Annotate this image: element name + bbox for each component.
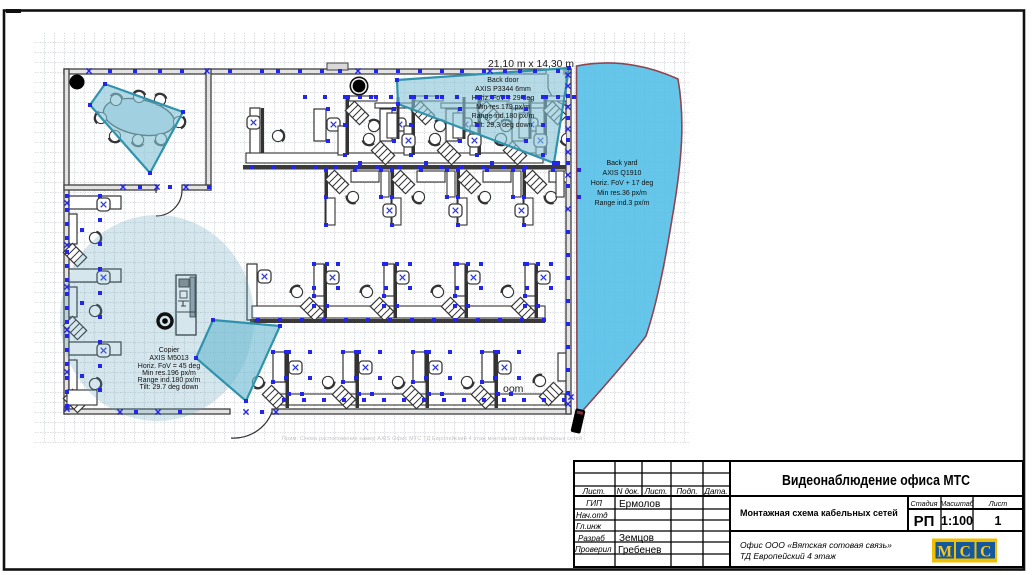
svg-text:AXIS Q1910: AXIS Q1910 bbox=[603, 170, 642, 177]
svg-text:Лист.: Лист. bbox=[582, 487, 606, 496]
svg-text:AXIS P3344 6mm: AXIS P3344 6mm bbox=[475, 86, 531, 93]
svg-text:Лист.: Лист. bbox=[644, 487, 668, 496]
svg-text:Офис ООО «Вятская сотовая связ: Офис ООО «Вятская сотовая связь» bbox=[740, 540, 892, 550]
svg-text:Horiz. FoV = 45 deg: Horiz. FoV = 45 deg bbox=[138, 363, 201, 370]
svg-text:Range ind.3 px/m: Range ind.3 px/m bbox=[595, 200, 650, 207]
svg-text:Подп.: Подп. bbox=[676, 487, 697, 496]
svg-text:Min res.179 px/m: Min res.179 px/m bbox=[476, 104, 530, 111]
svg-text:РП: РП bbox=[914, 513, 935, 530]
svg-text:ТД Европейский 4 этаж: ТД Европейский 4 этаж bbox=[740, 551, 837, 561]
svg-text:Земцов: Земцов bbox=[619, 533, 654, 544]
svg-text:Нач.отд: Нач.отд bbox=[576, 511, 608, 520]
svg-text:Tilt: 29.7 deg down: Tilt: 29.7 deg down bbox=[140, 384, 199, 391]
svg-text:Прим: Схема расположения каме: Прим: Схема расположения камер AXIS Офис… bbox=[282, 435, 582, 442]
svg-text:Стадия: Стадия bbox=[911, 499, 938, 508]
svg-text:Монтажная схема кабельных се: Монтажная схема кабельных сетей bbox=[740, 508, 898, 518]
svg-text:N док.: N док. bbox=[617, 487, 640, 496]
svg-text:oom: oom bbox=[503, 383, 524, 395]
svg-text:Range ind.180 px/m: Range ind.180 px/m bbox=[472, 113, 535, 120]
svg-text:Horiz. FoV + 17 deg: Horiz. FoV + 17 deg bbox=[591, 180, 654, 187]
svg-text:Tilt: 29,3 deg down: Tilt: 29,3 deg down bbox=[474, 122, 533, 129]
svg-text:21,10 m x 14,30 m: 21,10 m x 14,30 m bbox=[488, 59, 574, 70]
svg-text:1: 1 bbox=[995, 514, 1002, 528]
svg-text:Проверил: Проверил bbox=[575, 545, 612, 554]
svg-text:Back yard: Back yard bbox=[606, 160, 637, 167]
svg-text:Copier: Copier bbox=[159, 347, 180, 354]
svg-text:Min res.36 px/m: Min res.36 px/m bbox=[597, 190, 647, 197]
svg-text:Лист: Лист bbox=[988, 499, 1008, 508]
svg-text:Back door: Back door bbox=[487, 77, 519, 84]
svg-text:Масштаб: Масштаб bbox=[940, 499, 975, 508]
svg-text:ГИП: ГИП bbox=[586, 499, 602, 508]
svg-text:М: М bbox=[937, 544, 952, 561]
svg-text:1:100: 1:100 bbox=[941, 514, 973, 528]
svg-text:Разраб: Разраб bbox=[578, 534, 605, 543]
svg-text:Видеонаблюдение офиса МТС: Видеонаблюдение офиса МТС bbox=[782, 473, 970, 489]
svg-text:С: С bbox=[960, 544, 971, 561]
svg-text:Дата.: Дата. bbox=[703, 487, 727, 496]
svg-text:Min res.196 px/m: Min res.196 px/m bbox=[142, 370, 196, 377]
svg-text:Range ind.180 px/m: Range ind.180 px/m bbox=[138, 377, 201, 384]
svg-text:Гребенев: Гребенев bbox=[618, 544, 661, 556]
svg-text:AXIS M5013: AXIS M5013 bbox=[149, 355, 188, 362]
svg-text:С: С bbox=[980, 544, 991, 561]
svg-text:Ермолов: Ермолов bbox=[619, 499, 660, 510]
svg-text:Гл.инж: Гл.инж bbox=[576, 522, 602, 531]
